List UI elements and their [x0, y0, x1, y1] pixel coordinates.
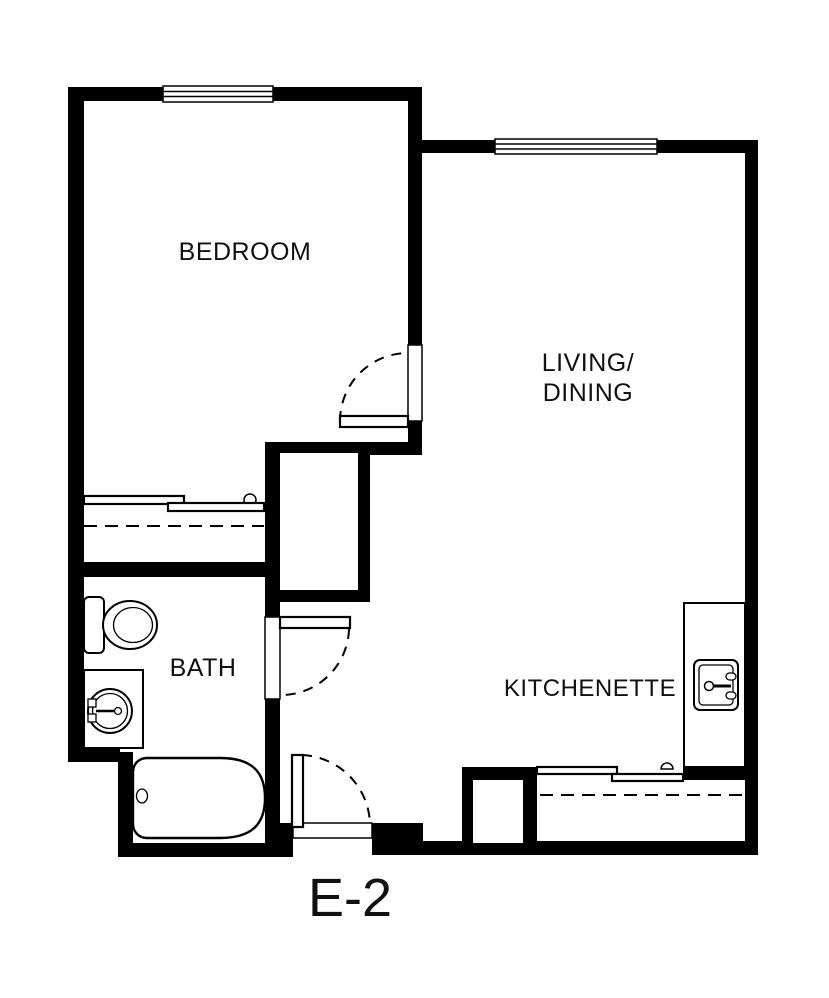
bedroom-window	[163, 86, 273, 102]
living-window	[495, 139, 657, 154]
bedroom-door-swing-arc	[340, 353, 408, 421]
bedroom-door-leaf	[340, 416, 408, 427]
kitchenette-fixtures	[684, 603, 745, 767]
bathtub	[133, 758, 265, 838]
wall-right	[745, 140, 758, 855]
entry-door-leaf	[292, 755, 303, 827]
kitchen-sliding-door-panel-2	[612, 774, 683, 781]
kitchen-sliding-door-panel-1	[537, 767, 617, 774]
bath-label: BATH	[170, 654, 237, 682]
vanity-faucet-handle	[88, 714, 96, 722]
wall-tub-left	[118, 752, 133, 857]
bath-door-swing-arc	[283, 629, 349, 695]
entry-door-threshold	[293, 823, 372, 838]
kitchen-faucet-handle	[726, 692, 736, 699]
wall-top-bedroom-right	[273, 87, 422, 101]
vanity-sink-drain	[115, 708, 122, 715]
wall-left	[68, 87, 84, 762]
closet-sliding-door-panel-2	[168, 503, 264, 511]
wall-top-living-right	[657, 140, 758, 153]
living-label-line2: DINING	[543, 379, 634, 407]
floor-plan: BEDROOM LIVING/ DINING BATH KITCHENETTE …	[0, 0, 829, 998]
bath-fixtures	[84, 597, 265, 838]
kitchen-slider-knob	[661, 763, 673, 769]
floor-plan-drawing: BEDROOM LIVING/ DINING BATH KITCHENETTE …	[0, 0, 829, 998]
entry-closet-cavity	[473, 780, 523, 843]
bedroom-door-opening	[408, 345, 422, 421]
wall-top-living-left	[422, 140, 495, 153]
toilet-tank	[84, 597, 104, 653]
wall-step-vanity	[68, 748, 120, 762]
kitchen-faucet-handle	[726, 673, 736, 680]
wall-bath-top	[68, 562, 280, 577]
interior-walls	[68, 87, 758, 857]
kitchenette-label: KITCHENETTE	[504, 675, 676, 702]
vanity-faucet-handle	[88, 699, 96, 707]
bath-door-opening	[265, 617, 280, 699]
utility-chase-cavity	[278, 453, 358, 590]
entry-door-swing-arc	[302, 755, 370, 825]
unit-plan-label: E-2	[308, 868, 392, 928]
kitchen-faucet-base	[705, 682, 714, 691]
wall-bedroom-right-upper	[408, 87, 422, 345]
living-label-line1: LIVING/	[542, 349, 634, 377]
wall-bath-right-upper	[265, 442, 280, 617]
bedroom-label: BEDROOM	[179, 238, 312, 266]
wall-bath-right-lower	[265, 699, 280, 857]
bath-door-leaf	[280, 617, 350, 628]
